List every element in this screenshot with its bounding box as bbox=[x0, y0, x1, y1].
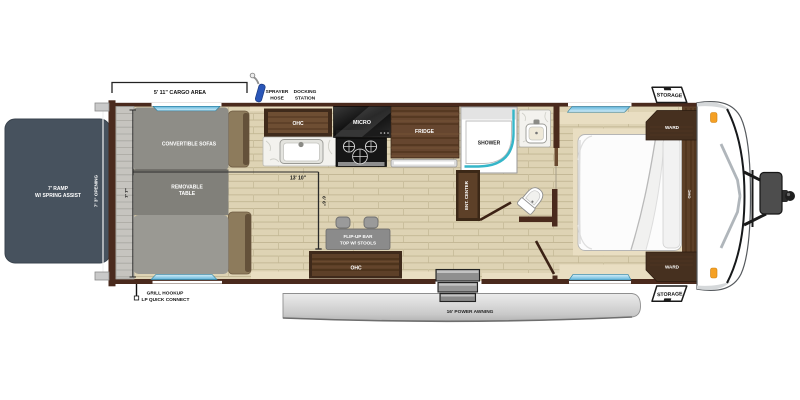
svg-text:16' POWER AWNING: 16' POWER AWNING bbox=[447, 309, 494, 315]
svg-text:CONVERTIBLE SOFAS: CONVERTIBLE SOFAS bbox=[162, 142, 217, 148]
svg-text:WARD: WARD bbox=[665, 265, 680, 270]
svg-text:13' 10": 13' 10" bbox=[290, 176, 307, 182]
svg-text:7' 7": 7' 7" bbox=[124, 188, 129, 198]
svg-text:STORAGE: STORAGE bbox=[657, 92, 683, 99]
svg-text:W/ SPRING ASSIST: W/ SPRING ASSIST bbox=[35, 193, 81, 199]
svg-text:STORAGE: STORAGE bbox=[657, 291, 683, 298]
svg-text:FRIDGE: FRIDGE bbox=[415, 129, 435, 135]
svg-text:7' 3" OPENING: 7' 3" OPENING bbox=[94, 175, 99, 208]
svg-text:REMOVABLE: REMOVABLE bbox=[171, 185, 203, 191]
svg-text:GRILL HOOKUP: GRILL HOOKUP bbox=[147, 291, 184, 297]
svg-text:STATION: STATION bbox=[295, 96, 316, 102]
svg-text:OHC: OHC bbox=[687, 189, 692, 198]
svg-text:WARD: WARD bbox=[665, 125, 680, 130]
svg-text:ENT. CENTER: ENT. CENTER bbox=[464, 180, 469, 210]
svg-text:LP QUICK CONNECT: LP QUICK CONNECT bbox=[142, 297, 190, 303]
svg-text:6' 6": 6' 6" bbox=[322, 196, 327, 206]
svg-text:OHC: OHC bbox=[292, 121, 304, 127]
svg-text:TABLE: TABLE bbox=[179, 191, 196, 197]
svg-text:7' RAMP: 7' RAMP bbox=[48, 186, 69, 192]
svg-text:DOCKING: DOCKING bbox=[294, 89, 317, 95]
svg-text:MICRO: MICRO bbox=[353, 120, 371, 126]
svg-text:OHC: OHC bbox=[350, 266, 362, 272]
svg-text:TOP W/ STOOLS: TOP W/ STOOLS bbox=[340, 241, 376, 246]
svg-text:SPRAYER: SPRAYER bbox=[266, 89, 289, 95]
svg-text:FLIP-UP BAR: FLIP-UP BAR bbox=[343, 234, 373, 239]
svg-text:5' 11" CARGO AREA: 5' 11" CARGO AREA bbox=[154, 90, 206, 96]
svg-text:HOSE: HOSE bbox=[270, 96, 284, 102]
svg-text:SHOWER: SHOWER bbox=[478, 141, 501, 147]
